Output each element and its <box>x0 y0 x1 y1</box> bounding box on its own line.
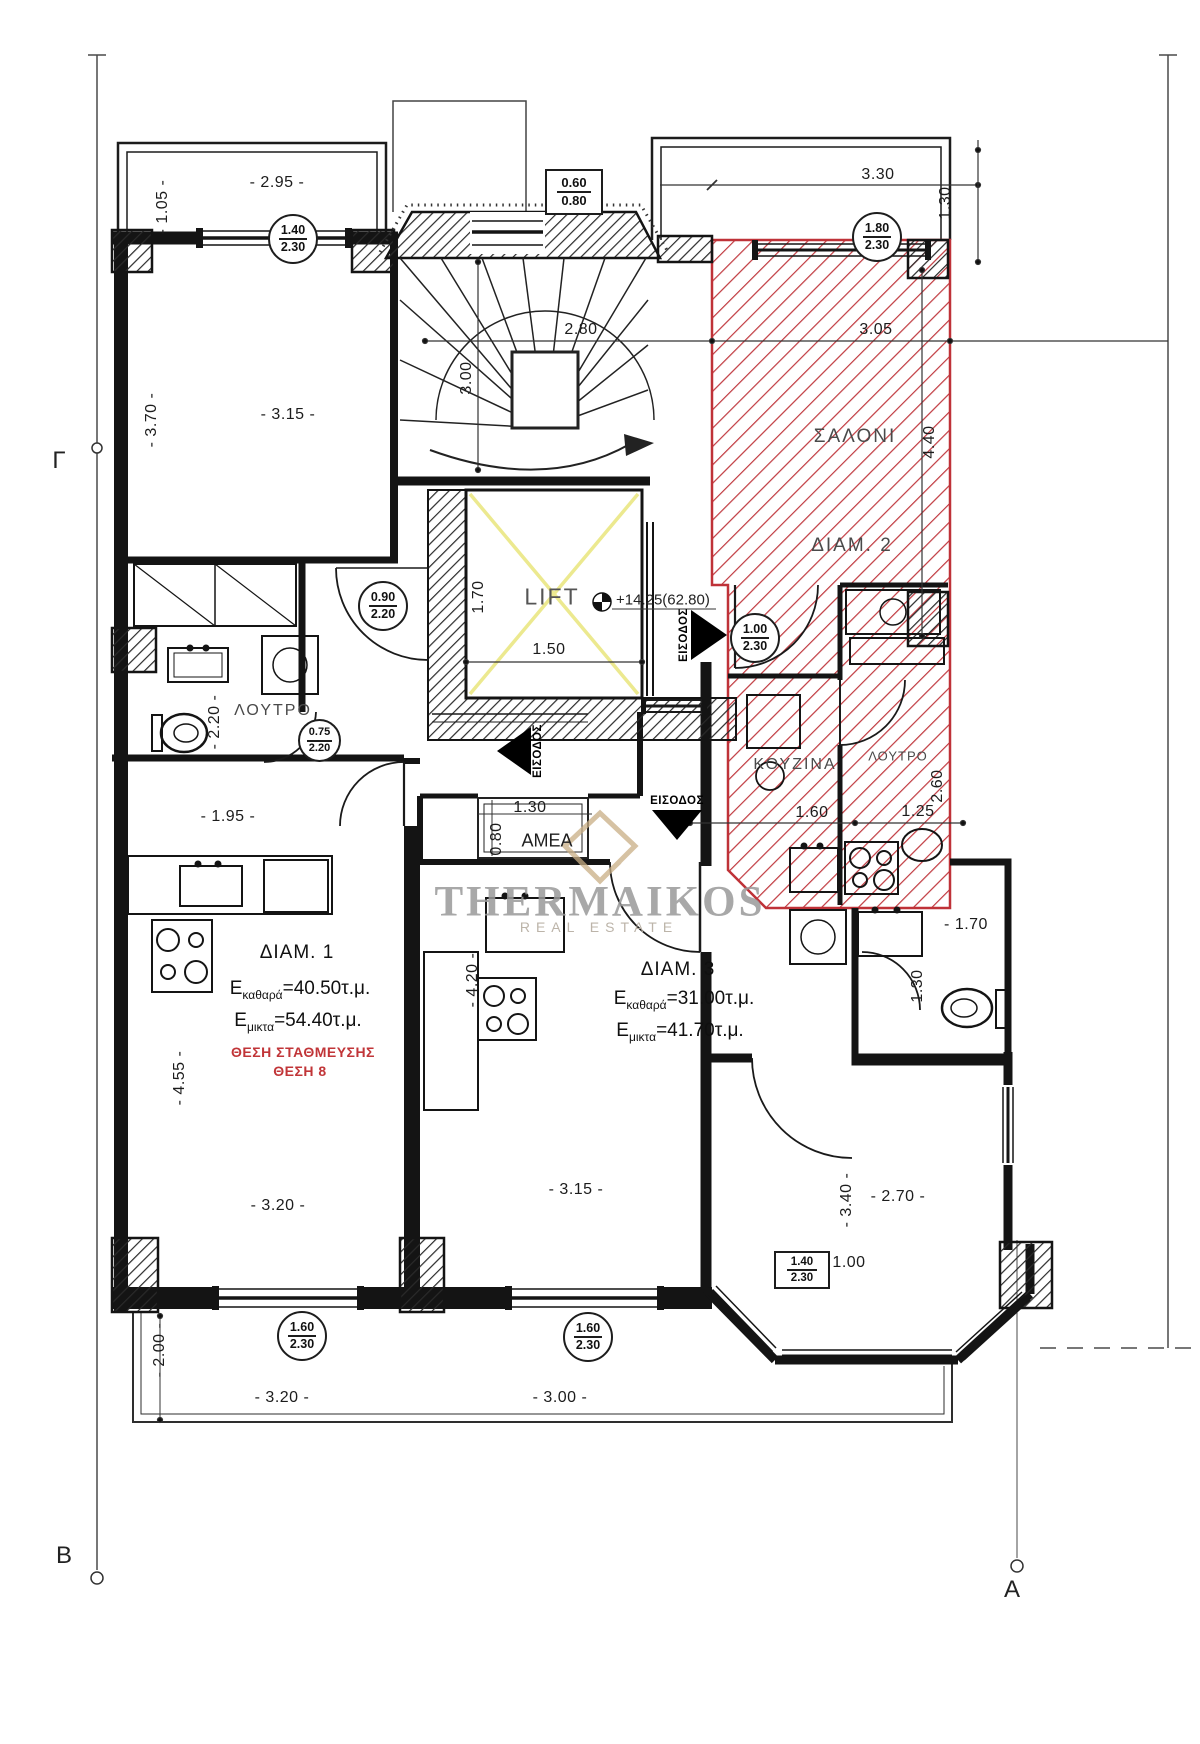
dimension-label: - 3.00 - <box>533 1389 588 1407</box>
tag-height: 2.30 <box>865 238 889 253</box>
window-tag: 1.002.30 <box>730 613 780 663</box>
tag-width: 1.80 <box>863 221 891 238</box>
e-symbol: E <box>230 978 243 999</box>
apartment1-gross-area: Eμικτα=54.40τ.μ. <box>234 1010 361 1034</box>
dimension-label: - 1.05 - <box>154 180 172 235</box>
floor-plan-canvas: - 2.95 - - 1.05 - - 3.15 - - 3.70 - 2.80… <box>0 0 1200 1744</box>
window-tag: 0.752.20 <box>298 719 341 762</box>
dimension-label: 1.50 <box>532 641 565 659</box>
dimension-label: - 2.00 - <box>151 1323 169 1378</box>
dimension-label: - 3.20 - <box>255 1389 310 1407</box>
apartment1-parking-line2: ΘΕΣΗ 8 <box>273 1063 326 1079</box>
apartment2-title: ΔΙΑΜ. 2 <box>811 535 893 557</box>
grid-marker-beta: Β <box>56 1542 72 1570</box>
window-tag: 1.802.30 <box>852 212 902 262</box>
level-marker-label: +14.25(62.80) <box>616 592 710 609</box>
dimension-label: 1.60 <box>795 804 828 822</box>
dimension-label: 1.00 <box>832 1254 865 1272</box>
dimension-label: 1.30 <box>937 186 955 219</box>
window-tag-box: 0.600.80 <box>545 169 603 215</box>
dimension-label: 3.05 <box>859 321 892 339</box>
gross-subscript: μικτα <box>247 1020 274 1034</box>
dimension-label: 3.30 <box>861 166 894 184</box>
floor-plan-drawing <box>0 0 1200 1744</box>
net-value: =31.00τ.μ. <box>667 988 755 1009</box>
entrance-label: ΕΙΣΟΔΟΣ <box>650 795 704 807</box>
dimension-label: - 2.95 - <box>250 174 305 192</box>
balcony-top-right <box>652 138 950 240</box>
tag-width: 0.75 <box>307 726 332 741</box>
dimension-label: - 3.40 - <box>838 1173 856 1228</box>
dimension-label: - 3.20 - <box>251 1197 306 1215</box>
apartment1-net-area: Eκαθαρά=40.50τ.μ. <box>230 978 371 1002</box>
tag-width: 1.60 <box>288 1320 316 1337</box>
grid-marker-alpha: Α <box>1004 1576 1020 1604</box>
e-symbol: E <box>614 988 627 1009</box>
window-tag: 0.902.20 <box>358 581 408 631</box>
dimension-label: - 3.15 - <box>549 1181 604 1199</box>
gross-value: =41.70τ.μ. <box>656 1020 744 1041</box>
grid-marker-gamma: Γ <box>52 447 65 475</box>
window-tag: 1.602.30 <box>277 1311 327 1361</box>
window-tag: 1.402.30 <box>268 214 318 264</box>
e-symbol: E <box>616 1020 629 1041</box>
room-label-kitchen: ΚΟΥΖΙΝΑ <box>753 756 836 774</box>
roof-outline <box>393 101 526 212</box>
tag-width: 0.90 <box>369 590 397 607</box>
window-tag-box: 1.402.30 <box>774 1251 830 1289</box>
apartment3-title: ΔΙΑΜ. 3 <box>641 959 716 981</box>
room-label-bathroom-apt1: ΛΟΥΤΡΟ <box>234 702 312 720</box>
tag-width: 1.00 <box>741 622 769 639</box>
dimension-lines <box>158 140 1169 1423</box>
tag-height: 2.30 <box>290 1337 314 1352</box>
apartment1-parking-line1: ΘΕΣΗ ΣΤΑΘΜΕΥΣΗΣ <box>231 1044 375 1060</box>
dimension-label: 0.80 <box>488 822 506 855</box>
staircase <box>400 258 654 470</box>
dimension-label: 1.25 <box>901 803 934 821</box>
tag-height: 2.30 <box>791 1271 813 1285</box>
apartment3-net-area: Eκαθαρά=31.00τ.μ. <box>614 988 755 1012</box>
dimension-label: 1.30 <box>513 799 546 817</box>
dimension-label: - 1.95 - <box>201 808 256 826</box>
gross-subscript: μικτα <box>629 1030 656 1044</box>
tag-width: 1.60 <box>574 1321 602 1338</box>
room-label-bathroom-apt2: ΛΟΥΤΡΟ <box>868 749 928 764</box>
entrance-label: ΕΙΣΟΔΟΣ <box>532 724 544 778</box>
tag-height: 2.30 <box>576 1338 600 1353</box>
watermark-tagline: REAL ESTATE <box>520 919 678 935</box>
apartment1-title: ΔΙΑΜ. 1 <box>260 942 335 964</box>
dimension-label: 4.40 <box>921 425 939 458</box>
tag-height: 2.30 <box>743 639 767 654</box>
dimension-label: - 4.55 - <box>171 1051 189 1106</box>
dimension-label: - 4.20 - <box>464 953 482 1008</box>
dimension-label: - 1.70 <box>944 916 988 934</box>
tag-width: 1.40 <box>279 223 307 240</box>
tag-height: 2.30 <box>281 240 305 255</box>
tag-height: 0.80 <box>561 193 586 209</box>
room-label-lift: LIFT <box>524 584 579 611</box>
room-label-living-room: ΣΑΛΟΝΙ <box>814 426 897 448</box>
tag-height: 2.20 <box>309 742 330 755</box>
dimension-label: - 2.20 - <box>206 695 224 750</box>
dimension-label: - 3.15 - <box>261 406 316 424</box>
gross-value: =54.40τ.μ. <box>274 1010 362 1031</box>
net-subscript: καθαρά <box>242 988 282 1002</box>
tag-height: 2.20 <box>371 607 395 622</box>
dimension-label: 1.30 <box>909 969 927 1002</box>
dimension-label: 3.00 <box>458 361 476 394</box>
dimension-label: - 3.70 - <box>143 393 161 448</box>
apartment3-gross-area: Eμικτα=41.70τ.μ. <box>616 1020 743 1044</box>
watermark-logo-icon <box>565 813 635 881</box>
tag-width: 1.40 <box>787 1255 817 1271</box>
net-value: =40.50τ.μ. <box>283 978 371 999</box>
dimension-label: 1.70 <box>470 580 488 613</box>
amea-label: AMEA <box>521 831 572 852</box>
window-tag: 1.602.30 <box>563 1312 613 1362</box>
entrance-arrow-right-icon <box>691 610 727 660</box>
dimension-label: 2.80 <box>564 321 597 339</box>
level-marker-symbol <box>593 593 611 611</box>
e-symbol: E <box>234 1010 247 1031</box>
dimension-label: 2.60 <box>929 769 947 802</box>
entrance-arrow-down-icon <box>652 810 702 840</box>
entrance-label: ΕΙΣΟΔΟΣ <box>678 608 690 662</box>
net-subscript: καθαρά <box>626 998 666 1012</box>
tag-width: 0.60 <box>557 175 590 193</box>
dimension-label: - 2.70 - <box>871 1188 926 1206</box>
